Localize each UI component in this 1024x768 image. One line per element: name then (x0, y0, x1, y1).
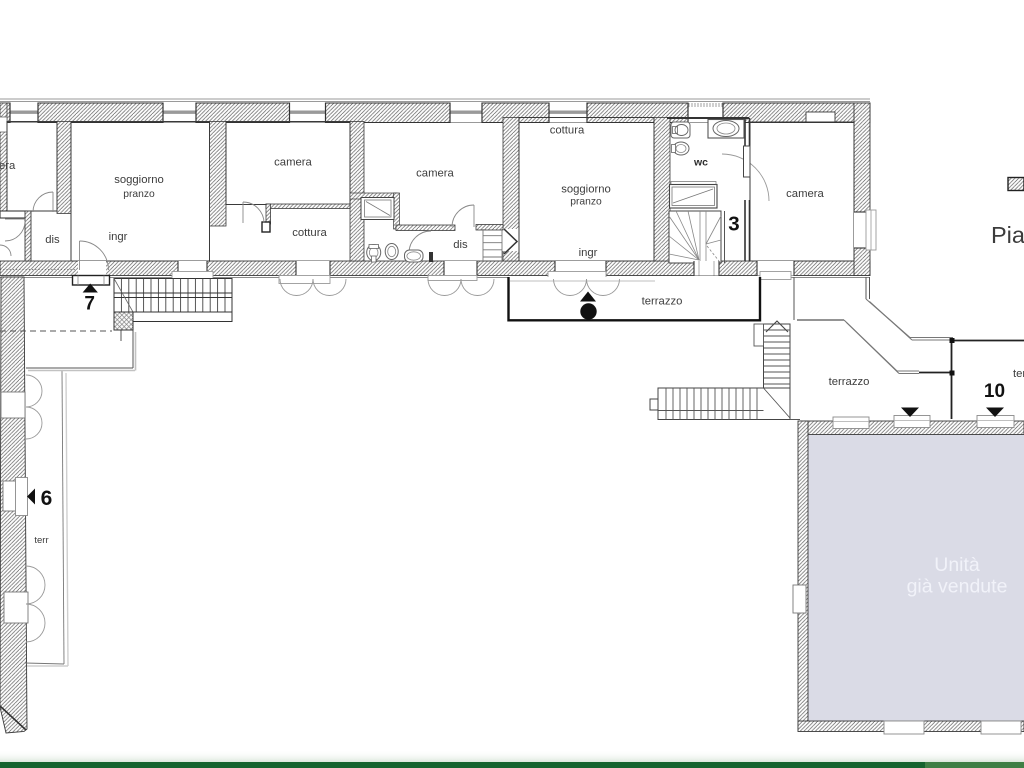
svg-text:terrazzo: terrazzo (1013, 368, 1024, 380)
svg-text:7: 7 (84, 294, 95, 315)
svg-text:terr: terr (34, 535, 48, 546)
svg-text:soggiorno: soggiorno (114, 174, 164, 186)
svg-text:10: 10 (984, 381, 1005, 402)
svg-text:pranzo: pranzo (570, 197, 602, 208)
svg-text:3: 3 (728, 213, 739, 236)
svg-text:terrazzo: terrazzo (829, 376, 870, 388)
svg-text:wc: wc (693, 157, 708, 169)
svg-text:soggiorno: soggiorno (561, 184, 611, 196)
svg-text:pranzo: pranzo (123, 189, 155, 200)
svg-text:ingr: ingr (579, 247, 598, 259)
svg-text:camera: camera (416, 168, 454, 180)
svg-text:Piano: Piano (991, 222, 1024, 248)
svg-text:dis: dis (453, 239, 468, 251)
svg-text:cottura: cottura (292, 227, 327, 239)
svg-text:cottura: cottura (550, 125, 585, 137)
svg-text:ingr: ingr (109, 231, 128, 243)
svg-text:dis: dis (45, 234, 60, 246)
svg-text:già vendute: già vendute (907, 576, 1008, 598)
svg-text:era: era (0, 160, 16, 172)
svg-text:camera: camera (786, 188, 824, 200)
svg-text:Unità: Unità (934, 554, 980, 576)
svg-text:camera: camera (274, 157, 312, 169)
svg-text:terrazzo: terrazzo (642, 296, 683, 308)
svg-text:6: 6 (41, 487, 53, 510)
